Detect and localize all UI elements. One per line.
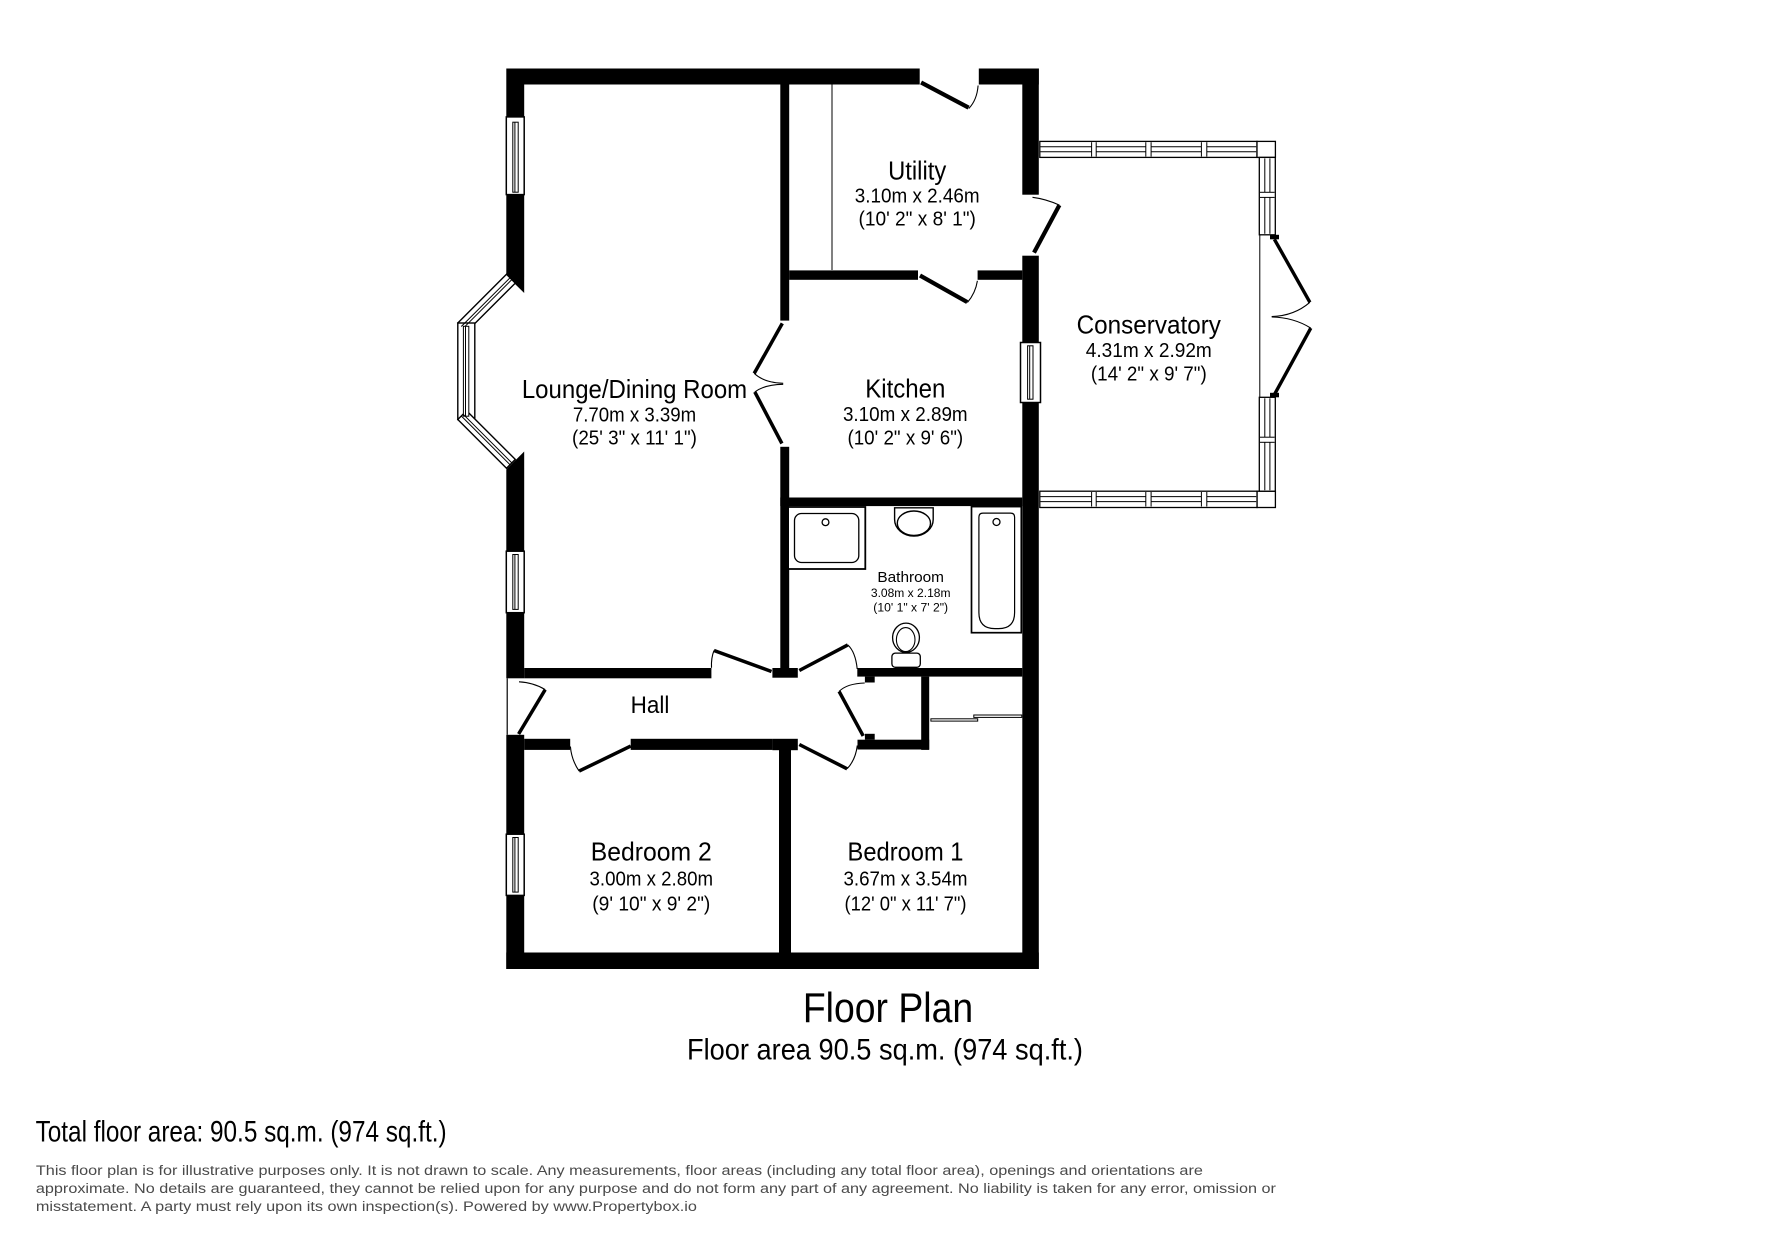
svg-text:7.70m x 3.39m: 7.70m x 3.39m: [573, 405, 696, 427]
svg-text:Floor area 90.5 sq.m. (974 sq.: Floor area 90.5 sq.m. (974 sq.ft.): [687, 1034, 1083, 1067]
svg-text:(9' 10" x 9' 2"): (9' 10" x 9' 2"): [592, 893, 710, 915]
svg-text:3.10m x 2.89m: 3.10m x 2.89m: [843, 404, 968, 426]
svg-text:3.08m x 2.18m: 3.08m x 2.18m: [871, 586, 951, 600]
svg-text:misstatement. A party must rel: misstatement. A party must rely upon its…: [36, 1199, 697, 1215]
svg-text:4.31m x 2.92m: 4.31m x 2.92m: [1086, 340, 1212, 362]
svg-text:This floor plan is for illustr: This floor plan is for illustrative purp…: [36, 1163, 1203, 1179]
svg-text:3.00m x 2.80m: 3.00m x 2.80m: [590, 868, 714, 890]
svg-text:Conservatory: Conservatory: [1077, 312, 1221, 340]
svg-text:Hall: Hall: [631, 692, 670, 719]
svg-text:(10' 1" x 7' 2"): (10' 1" x 7' 2"): [873, 601, 948, 615]
svg-text:(10' 2" x 9' 6"): (10' 2" x 9' 6"): [847, 428, 963, 450]
svg-text:Total floor area: 90.5 sq.m. (: Total floor area: 90.5 sq.m. (974 sq.ft.…: [36, 1116, 447, 1149]
svg-text:Bathroom: Bathroom: [877, 569, 944, 586]
svg-text:Utility: Utility: [888, 157, 946, 185]
svg-text:3.67m x 3.54m: 3.67m x 3.54m: [844, 868, 968, 890]
svg-text:(25' 3" x 11' 1"): (25' 3" x 11' 1"): [572, 428, 697, 450]
svg-text:Floor Plan: Floor Plan: [803, 984, 973, 1031]
svg-text:Lounge/Dining Room: Lounge/Dining Room: [522, 374, 747, 404]
svg-text:approximate. No details are gu: approximate. No details are guaranteed, …: [36, 1181, 1276, 1197]
svg-text:(10' 2" x 8' 1"): (10' 2" x 8' 1"): [859, 208, 976, 230]
svg-text:Bedroom 1: Bedroom 1: [848, 839, 964, 867]
svg-text:Bedroom 2: Bedroom 2: [591, 839, 712, 867]
svg-text:3.10m x 2.46m: 3.10m x 2.46m: [855, 185, 980, 207]
svg-text:(12' 0" x 11' 7"): (12' 0" x 11' 7"): [845, 893, 967, 915]
svg-text:(14' 2" x 9' 7"): (14' 2" x 9' 7"): [1091, 363, 1207, 385]
svg-text:Kitchen: Kitchen: [865, 375, 945, 403]
